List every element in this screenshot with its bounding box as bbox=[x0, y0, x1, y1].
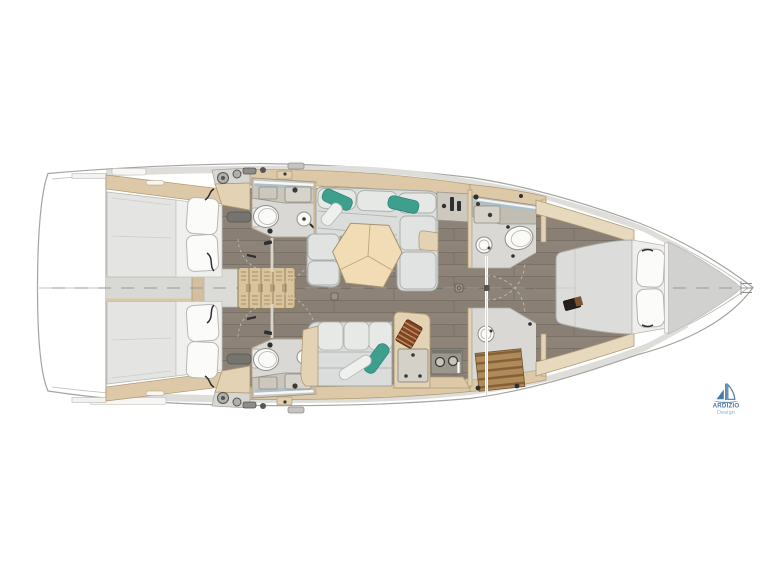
svg-text:ARDIZIO: ARDIZIO bbox=[713, 403, 740, 410]
svg-text:Design: Design bbox=[717, 410, 735, 416]
